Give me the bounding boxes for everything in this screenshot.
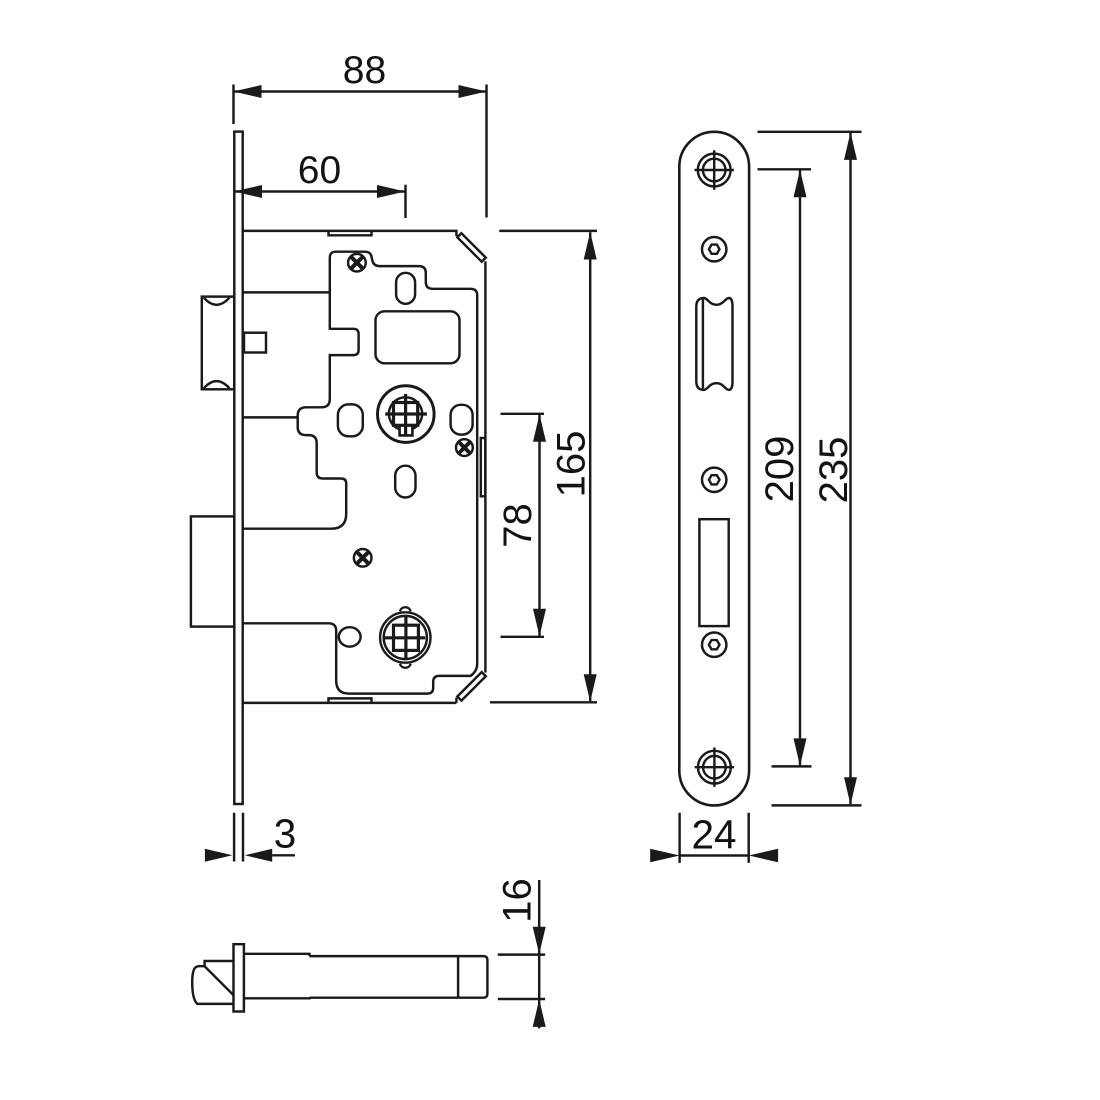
svg-text:24: 24 (691, 812, 736, 858)
svg-text:165: 165 (550, 431, 594, 498)
svg-text:16: 16 (496, 878, 540, 923)
svg-text:60: 60 (298, 149, 341, 192)
svg-text:235: 235 (812, 437, 856, 504)
svg-text:209: 209 (758, 436, 802, 503)
svg-text:3: 3 (274, 811, 297, 857)
svg-text:78: 78 (496, 503, 540, 548)
svg-text:88: 88 (343, 49, 386, 92)
